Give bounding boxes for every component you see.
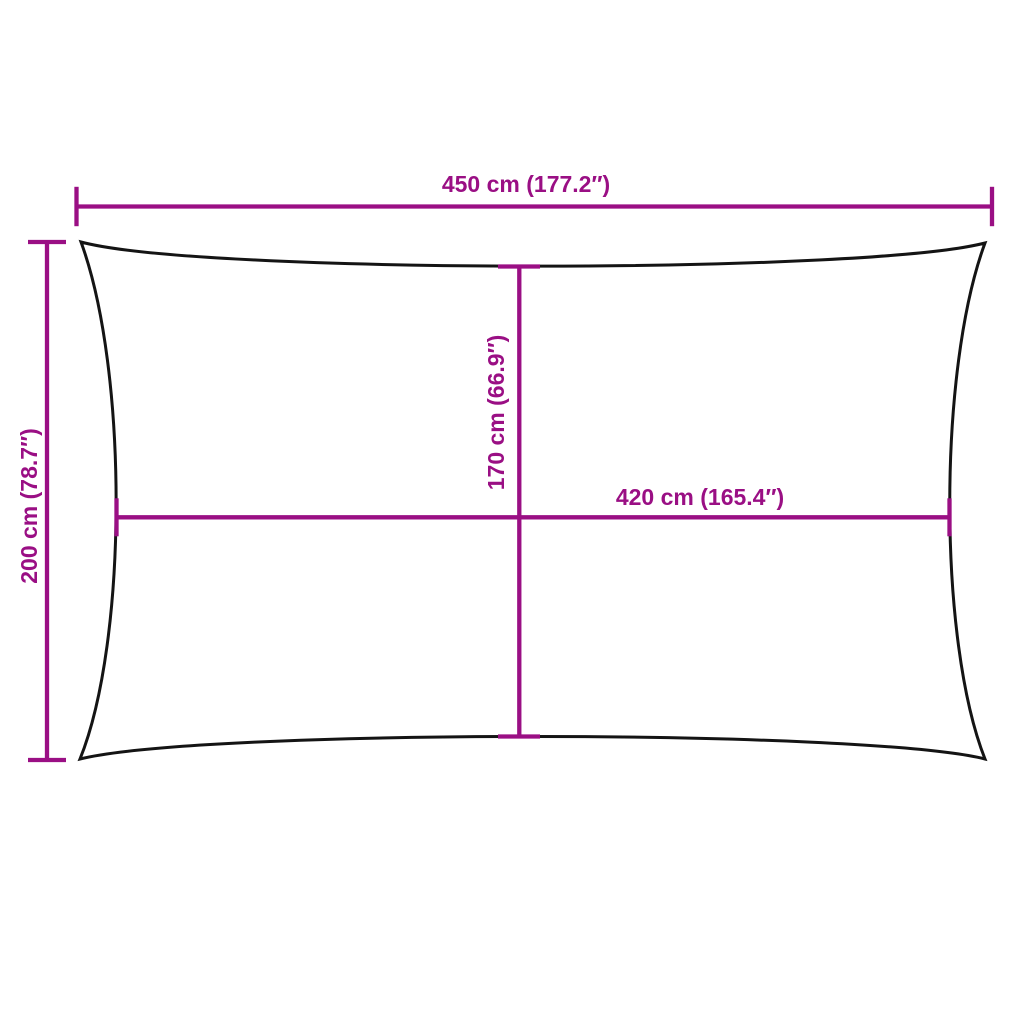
svg-text:420 cm (165.4″): 420 cm (165.4″): [616, 484, 784, 510]
svg-text:170 cm (66.9″): 170 cm (66.9″): [483, 335, 509, 491]
svg-text:450 cm (177.2″): 450 cm (177.2″): [442, 171, 610, 197]
svg-text:200 cm (78.7″): 200 cm (78.7″): [16, 428, 42, 584]
